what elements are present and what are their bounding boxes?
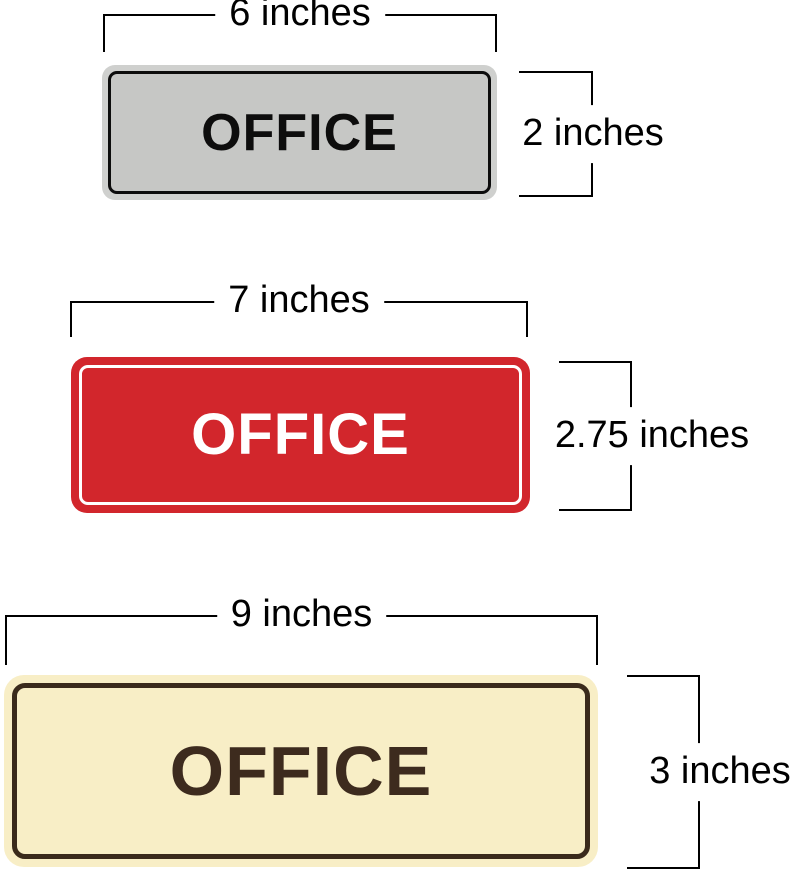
width-bracket-9-inches: 9 inches [5,615,598,665]
sign-text: OFFICE [191,406,410,464]
width-dimension-label: 7 inches [214,280,384,322]
office-sign-red: OFFICE [71,357,530,513]
width-dimension-label: 6 inches [215,0,385,35]
width-bracket-6-inches: 6 inches [103,14,497,52]
office-sign-cream: OFFICE [4,675,598,867]
width-bracket-7-inches: 7 inches [70,301,528,337]
height-bracket-2-75-inches: 2.75 inches [559,361,632,511]
height-bracket-3-inches: 3 inches [627,675,700,869]
sign-text: OFFICE [201,107,398,159]
product-dimension-diagram: 6 inches OFFICE 2 inches 7 inches OFFICE… [0,0,795,876]
height-dimension-label: 2 inches [516,105,670,163]
height-dimension-label: 2.75 inches [549,407,755,465]
height-bracket-2-inches: 2 inches [519,71,593,197]
width-dimension-label: 9 inches [217,594,387,636]
office-sign-gray: OFFICE [102,65,497,200]
height-dimension-label: 3 inches [643,743,795,801]
sign-text: OFFICE [170,736,433,806]
